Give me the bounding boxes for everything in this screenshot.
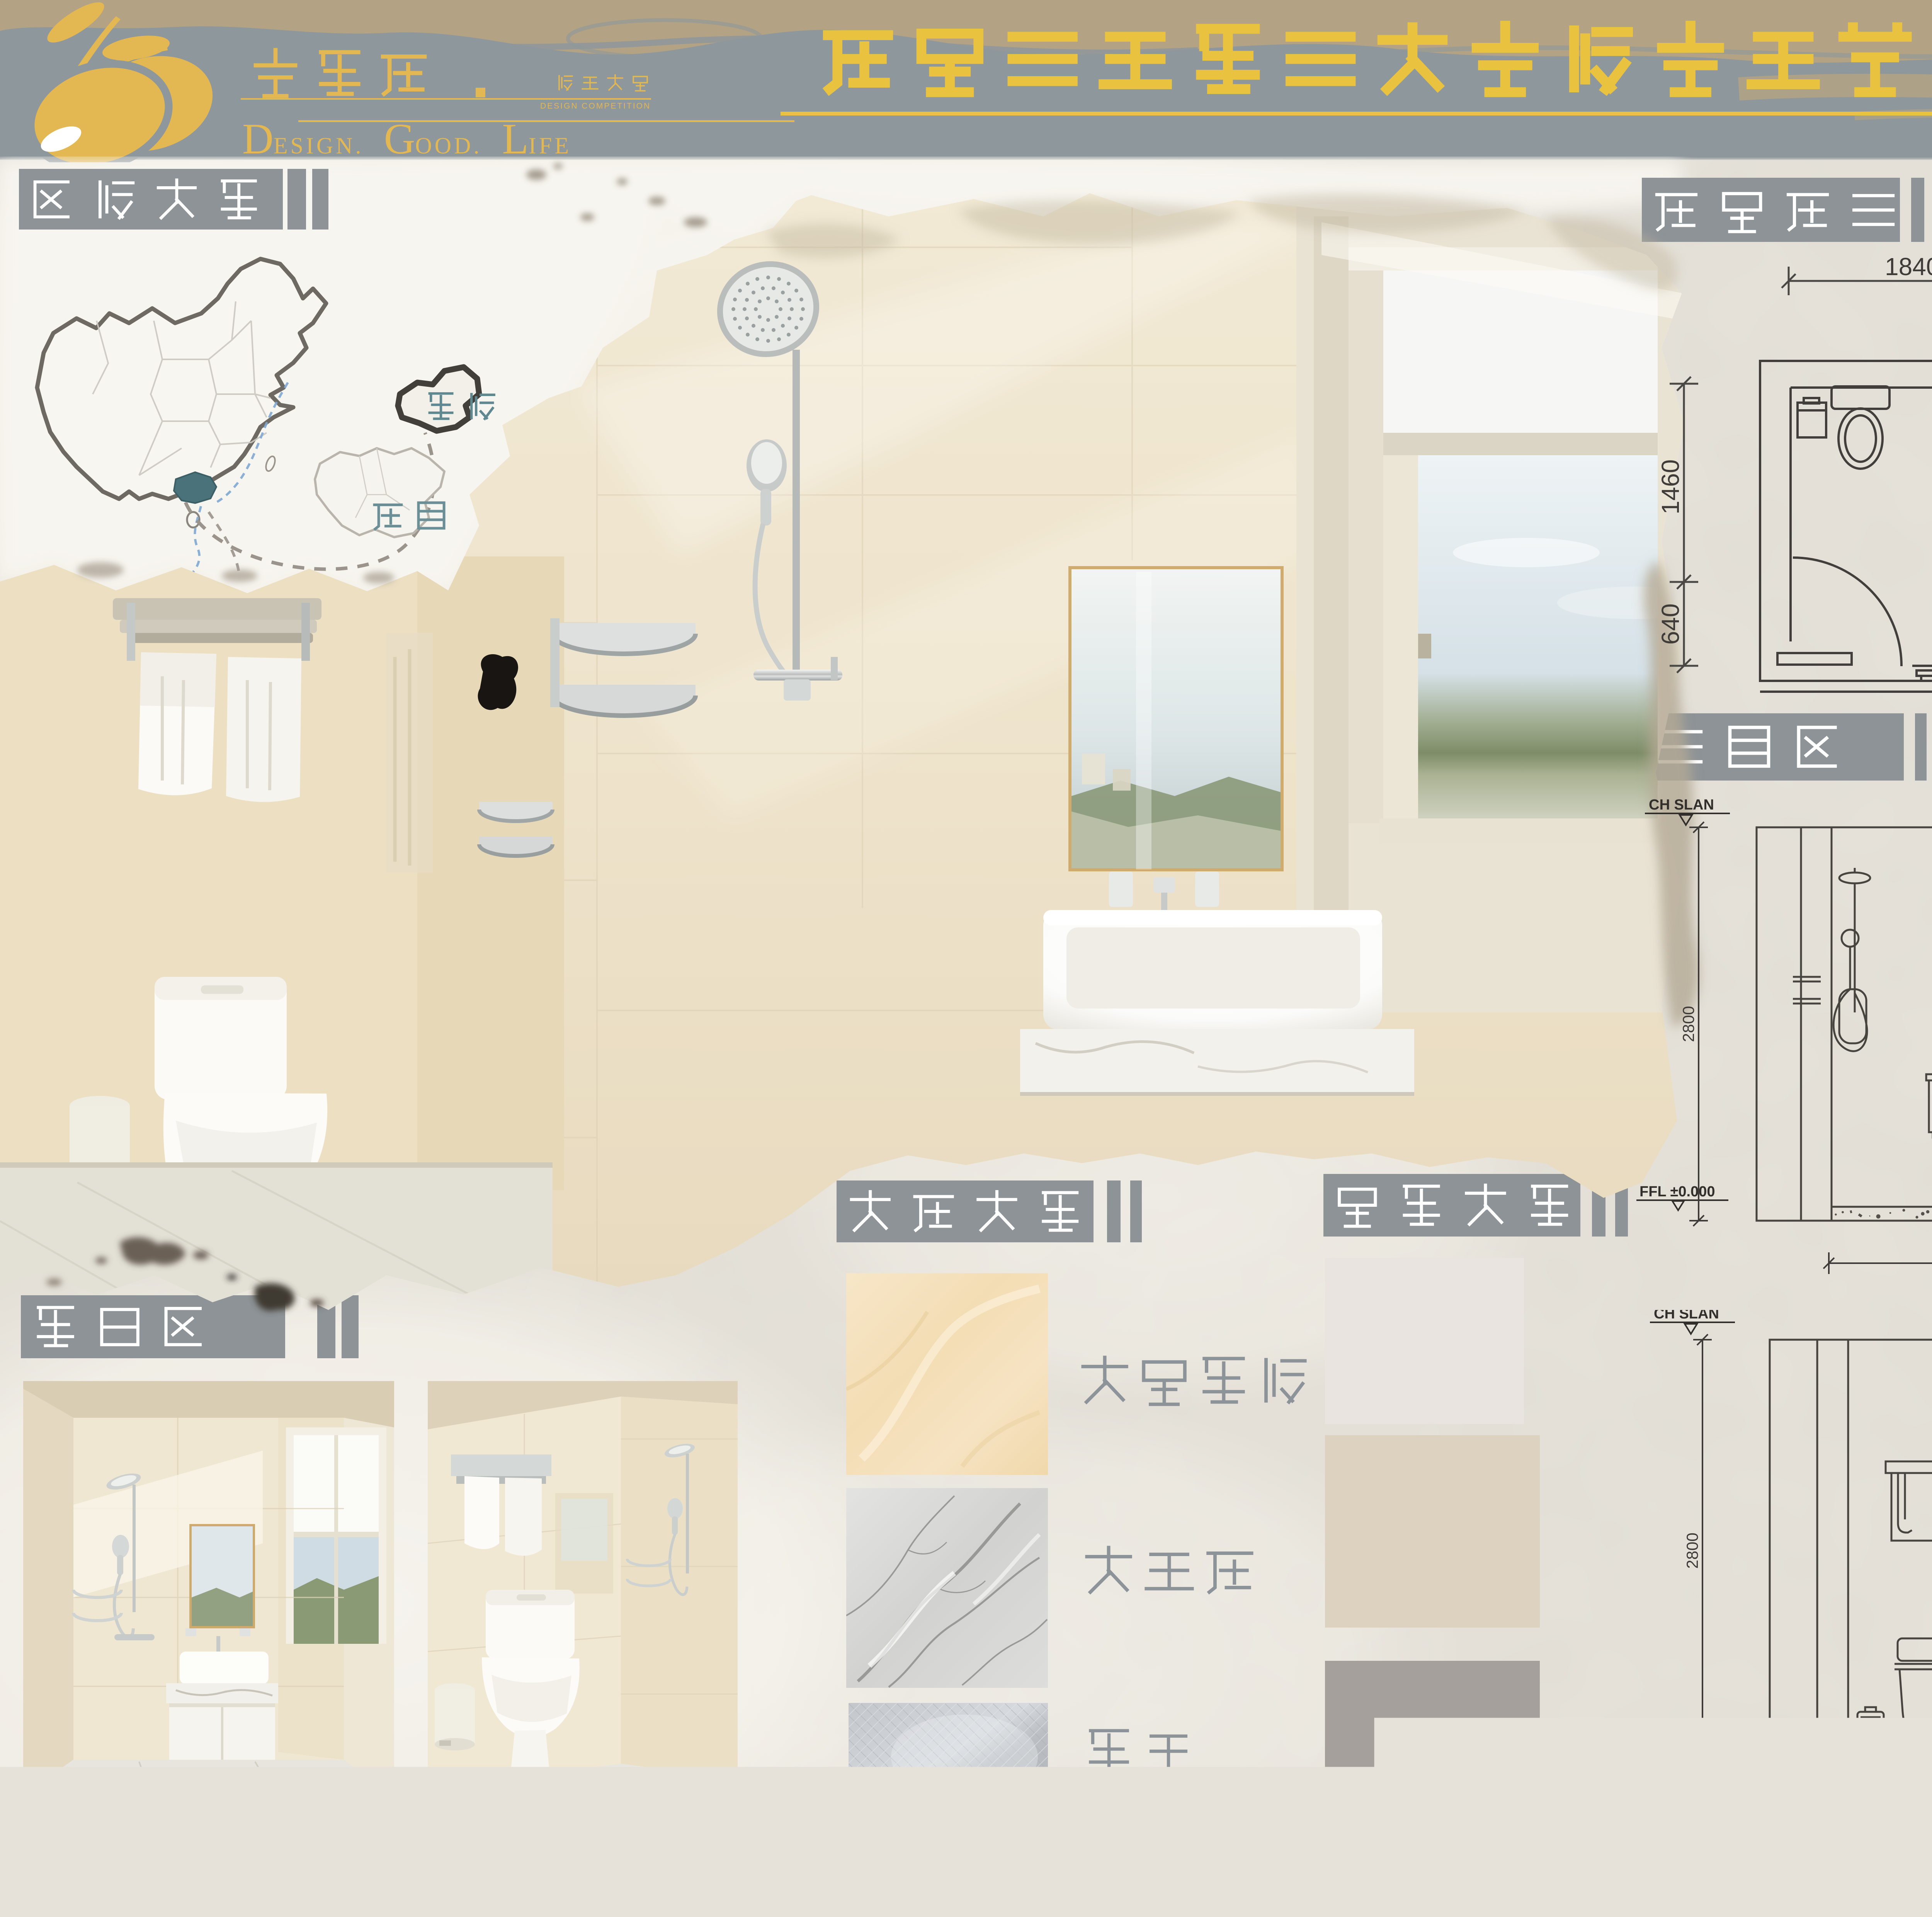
svg-text:1840: 1840 (1885, 253, 1932, 281)
svg-text:1460: 1460 (1656, 459, 1684, 514)
svg-text:FFL ±0.000: FFL ±0.000 (1639, 1184, 1715, 1200)
svg-text:CH SLAN: CH SLAN (1654, 1310, 1719, 1322)
svg-text:640: 640 (1656, 604, 1684, 645)
svg-text:2800: 2800 (1683, 1533, 1701, 1568)
svg-text:2800: 2800 (1679, 1006, 1697, 1042)
svg-text:CH SLAN: CH SLAN (1649, 797, 1714, 813)
svg-text:FFL ±0.000: FFL ±0.000 (1639, 1721, 1715, 1737)
